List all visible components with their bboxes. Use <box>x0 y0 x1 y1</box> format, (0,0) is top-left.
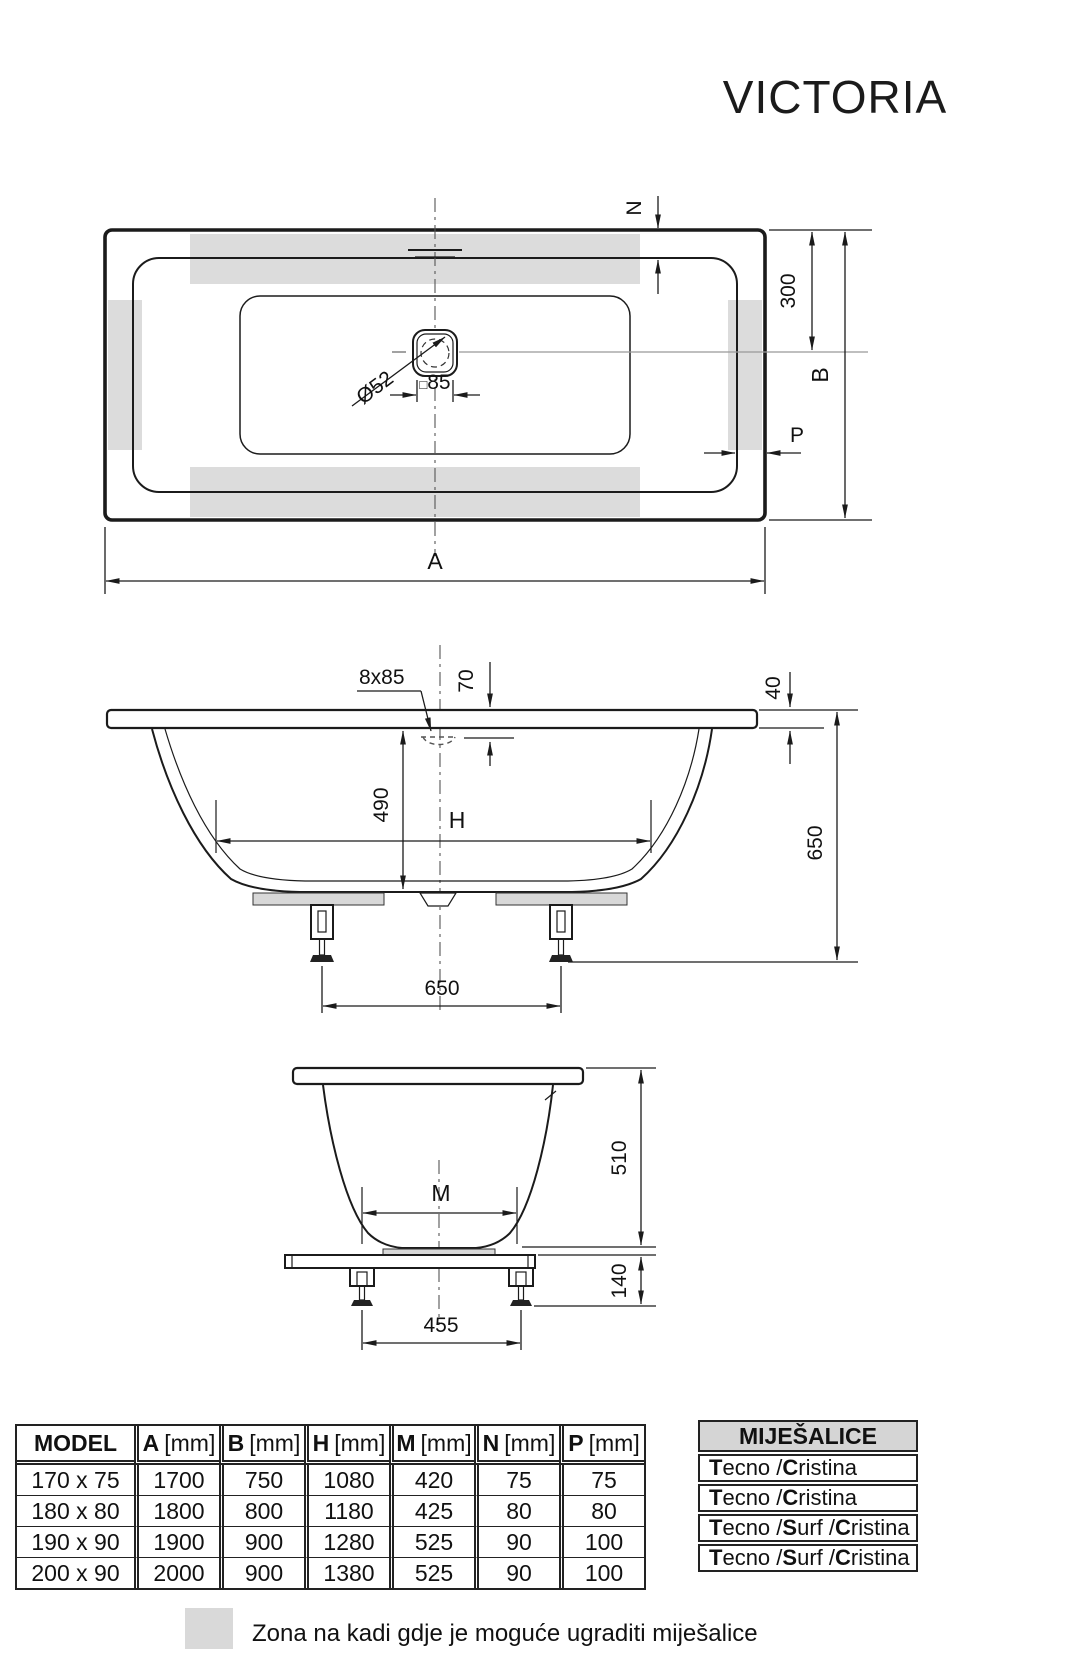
tub-shell-inner <box>165 729 699 881</box>
mixers-table: MIJEŠALICE Tecno / Cristina Tecno / Cris… <box>698 1420 918 1572</box>
cell-b: 900 <box>219 1557 304 1588</box>
column-header-b: B[mm] <box>219 1426 304 1465</box>
top-view: Ø52 □85 N 300 B P A <box>105 196 872 594</box>
side-view: 8x85 70 490 H 40 650 <box>107 645 858 1015</box>
cell-model: 170 x 75 <box>17 1465 134 1495</box>
column-header-m: M[mm] <box>389 1426 474 1465</box>
cell-b: 800 <box>219 1495 304 1526</box>
cell-model: 190 x 90 <box>17 1526 134 1557</box>
mixer-row: Tecno / Surf / Cristina <box>698 1514 918 1542</box>
cell-n: 90 <box>474 1526 559 1557</box>
dim-label-p: P <box>790 424 804 447</box>
cell-a: 1700 <box>134 1465 219 1495</box>
cell-model: 180 x 80 <box>17 1495 134 1526</box>
dim-label-n: N <box>623 200 646 215</box>
end-view: M 510 140 <box>285 1068 656 1350</box>
cell-b: 750 <box>219 1465 304 1495</box>
rim-slab <box>293 1068 583 1084</box>
overflow-label: 8x85 <box>359 666 405 689</box>
mixer-zone-right <box>728 300 762 450</box>
cell-h: 1180 <box>304 1495 389 1526</box>
square-symbol: □ <box>419 377 427 392</box>
cell-h: 1280 <box>304 1526 389 1557</box>
mixer-row: Tecno / Cristina <box>698 1454 918 1482</box>
column-header-h: H[mm] <box>304 1426 389 1465</box>
dim-label-455: 455 <box>423 1314 458 1337</box>
mixer-row: Tecno / Cristina <box>698 1484 918 1512</box>
overflow-slot-arc <box>423 737 455 745</box>
dim-label-650-height: 650 <box>804 825 827 860</box>
dim-label-b: B <box>807 367 833 382</box>
dim-label-650-feet: 650 <box>424 977 459 1000</box>
cell-model: 200 x 90 <box>17 1557 134 1588</box>
column-header-model: MODEL <box>17 1426 134 1465</box>
base-pad-left <box>253 893 384 905</box>
dim-label-a: A <box>427 548 443 574</box>
base-pad-right <box>496 893 627 905</box>
cell-a: 1800 <box>134 1495 219 1526</box>
dim-label-70: 70 <box>455 669 478 692</box>
drain-boss <box>420 893 456 906</box>
cell-b: 900 <box>219 1526 304 1557</box>
mixer-row: Tecno / Surf / Cristina <box>698 1544 918 1572</box>
cell-h: 1080 <box>304 1465 389 1495</box>
tub-shell-outer <box>152 729 712 892</box>
dim-label-140: 140 <box>608 1263 631 1298</box>
cell-p: 100 <box>559 1557 644 1588</box>
cell-p: 75 <box>559 1465 644 1495</box>
dim-label-490: 490 <box>370 787 393 822</box>
dim-label-510: 510 <box>608 1140 631 1175</box>
column-header-a: A[mm] <box>134 1426 219 1465</box>
cell-h: 1380 <box>304 1557 389 1588</box>
tub-shell <box>323 1085 553 1248</box>
mixers-table-title: MIJEŠALICE <box>698 1420 918 1452</box>
dimensions-table: MODEL A[mm] B[mm] H[mm] M[mm] N[mm] P[mm… <box>15 1424 646 1590</box>
cell-n: 75 <box>474 1465 559 1495</box>
cell-m: 425 <box>389 1495 474 1526</box>
cell-p: 80 <box>559 1495 644 1526</box>
legend-text: Zona na kadi gdje je moguće ugraditi mij… <box>252 1620 758 1648</box>
dim-label-m: M <box>431 1180 450 1206</box>
cell-a: 1900 <box>134 1526 219 1557</box>
adjustable-foot-right <box>549 905 573 962</box>
cell-m: 420 <box>389 1465 474 1495</box>
dim-label-300: 300 <box>777 273 800 308</box>
technical-drawing: Ø52 □85 N 300 B P A <box>0 0 1075 1400</box>
adjustable-foot-left <box>310 905 334 962</box>
column-header-p: P[mm] <box>559 1426 644 1465</box>
column-header-n: N[mm] <box>474 1426 559 1465</box>
cell-n: 90 <box>474 1557 559 1588</box>
cell-p: 100 <box>559 1526 644 1557</box>
cell-m: 525 <box>389 1557 474 1588</box>
cell-m: 525 <box>389 1526 474 1557</box>
dim-label-40: 40 <box>762 676 785 699</box>
rim-slab <box>107 710 757 728</box>
cell-n: 80 <box>474 1495 559 1526</box>
mixer-zone-left <box>108 300 142 450</box>
spec-sheet-page: VICTORIA Ø52 <box>0 0 1075 1667</box>
square-value: 85 <box>427 371 450 394</box>
dim-label-h: H <box>449 807 466 833</box>
cell-a: 2000 <box>134 1557 219 1588</box>
legend-zone-swatch <box>185 1608 233 1649</box>
support-frame <box>285 1255 535 1306</box>
